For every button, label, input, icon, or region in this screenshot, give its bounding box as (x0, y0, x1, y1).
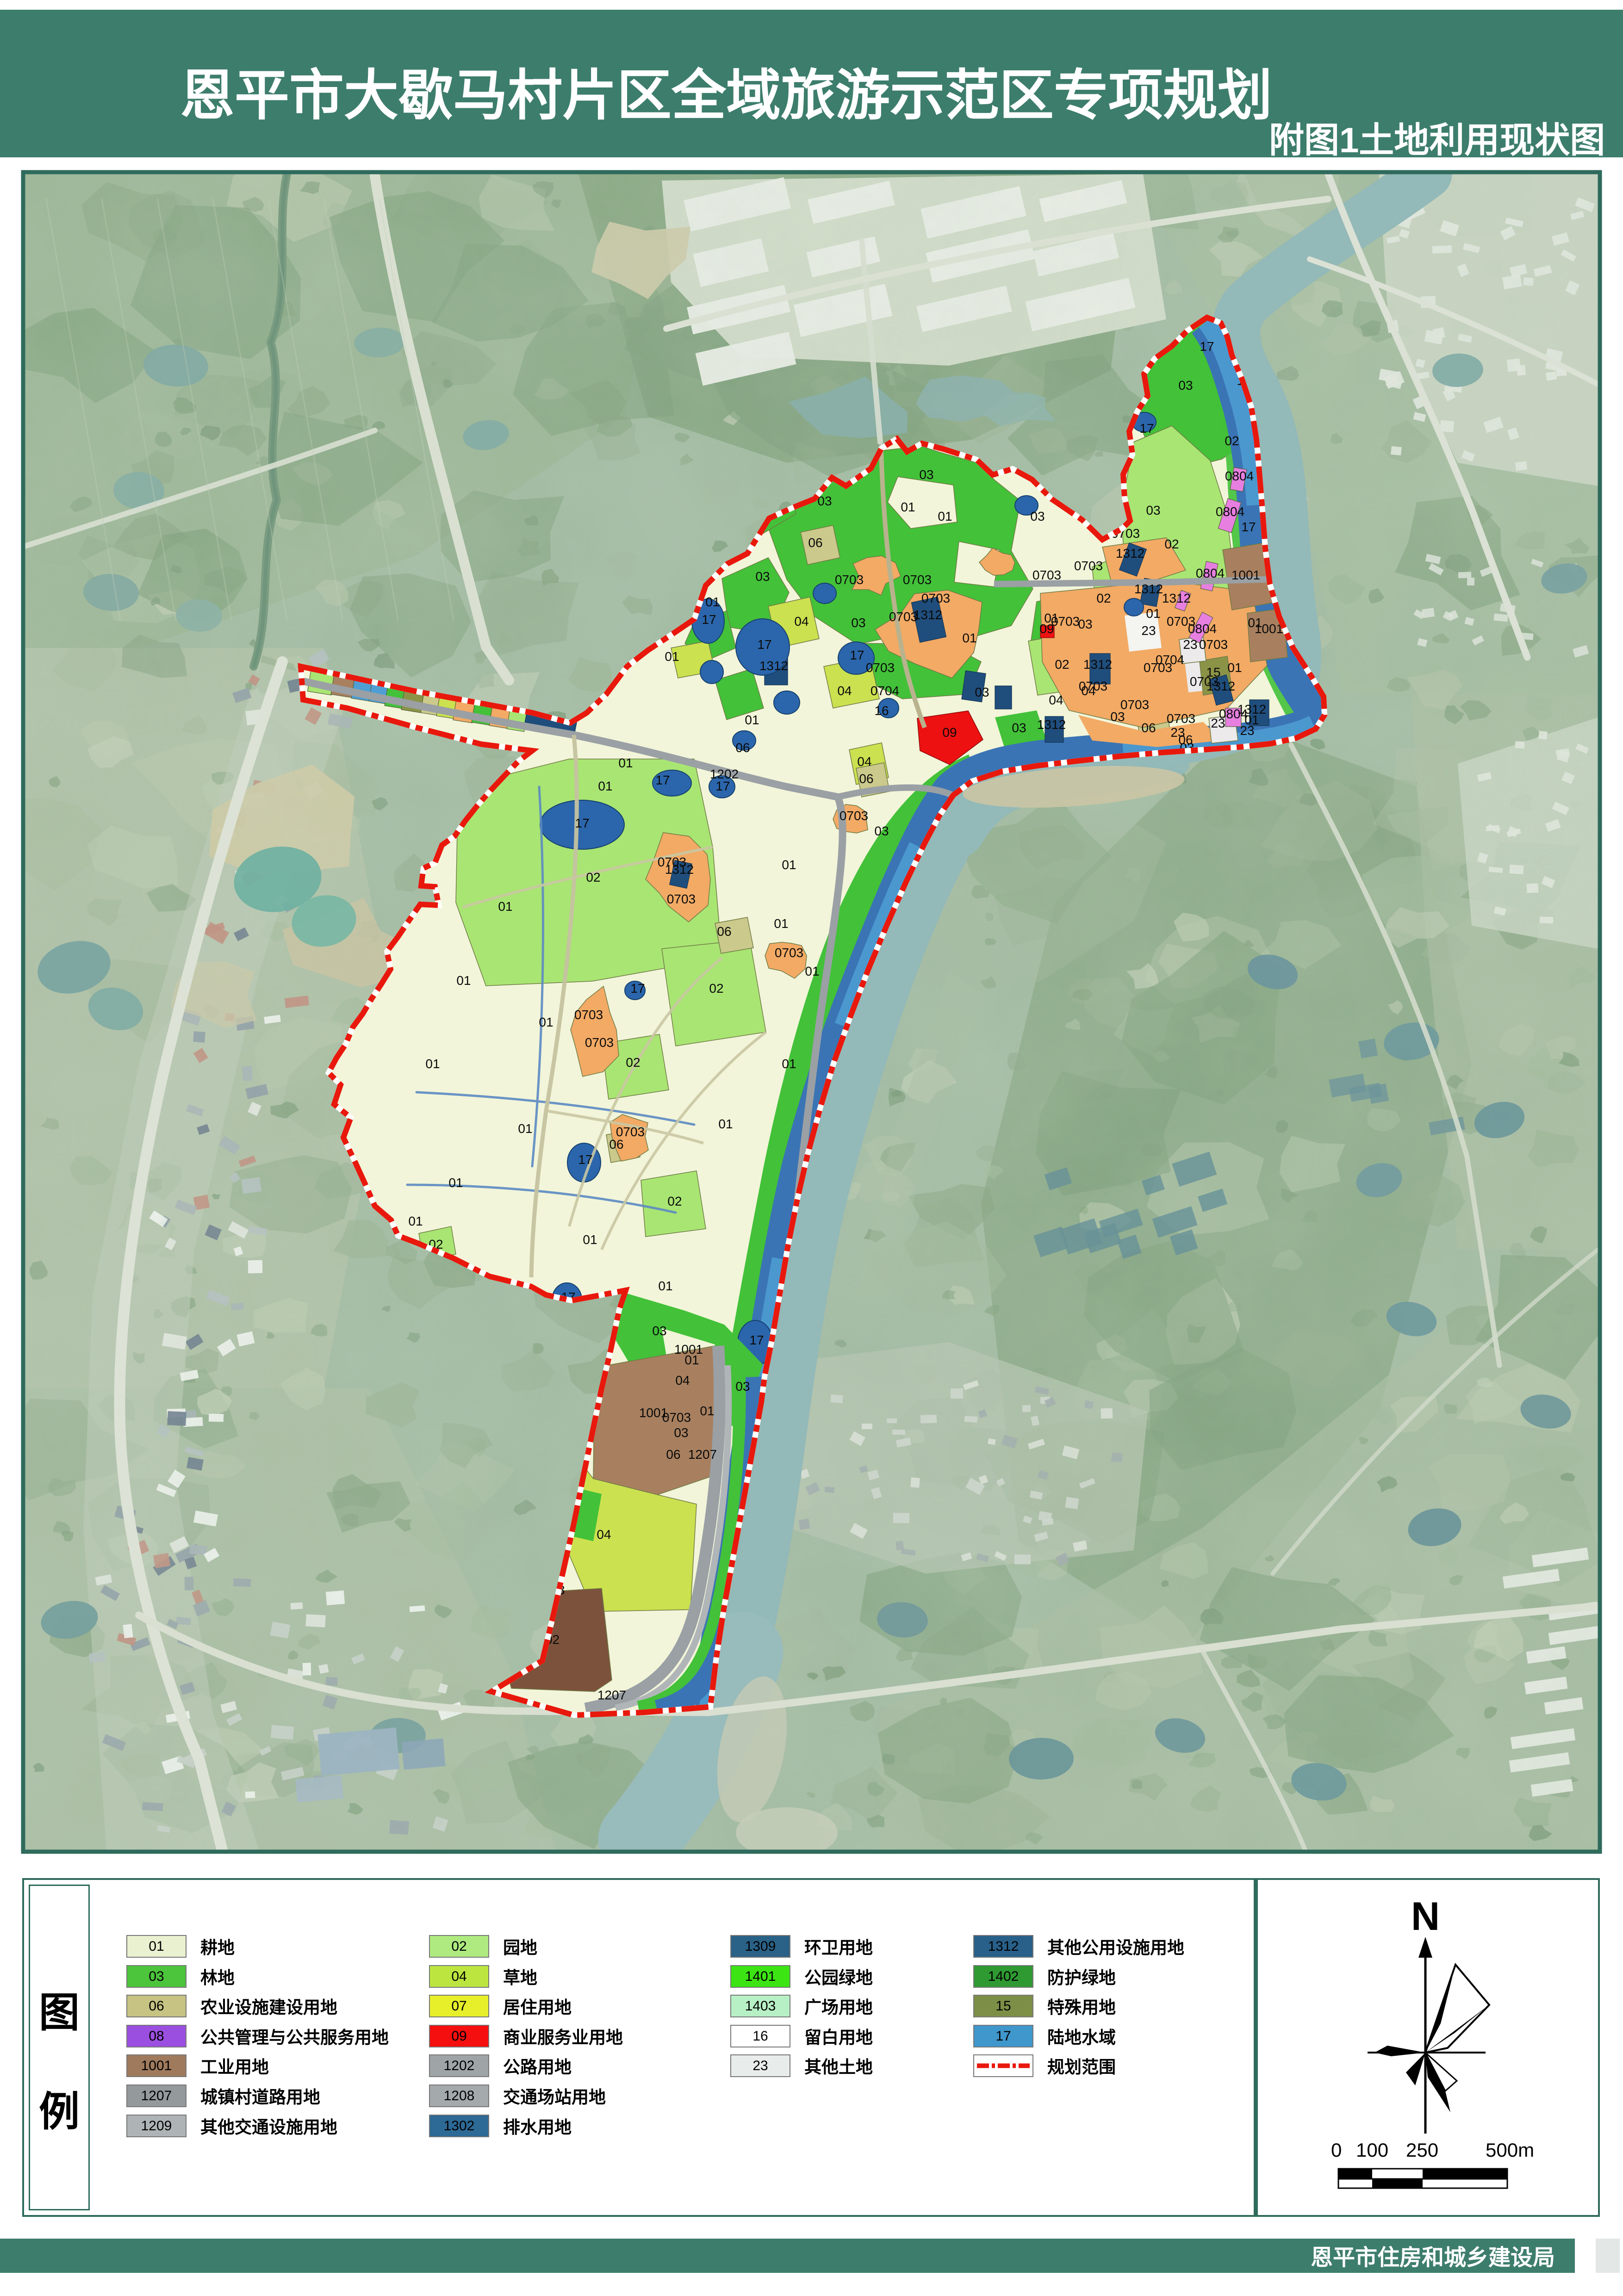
svg-text:0703: 0703 (1190, 674, 1219, 689)
svg-text:01: 01 (962, 631, 976, 645)
svg-text:1312: 1312 (1116, 546, 1144, 560)
svg-text:06: 06 (735, 740, 750, 755)
svg-text:0704: 0704 (871, 684, 899, 698)
svg-text:0703: 0703 (1074, 559, 1103, 573)
svg-text:01: 01 (718, 1117, 733, 1131)
svg-text:06: 06 (609, 1137, 623, 1151)
svg-text:06: 06 (808, 535, 822, 550)
svg-text:17: 17 (575, 816, 589, 830)
svg-text:04: 04 (1049, 693, 1063, 707)
svg-text:01: 01 (539, 1015, 553, 1029)
svg-text:0703: 0703 (775, 946, 803, 960)
svg-text:03: 03 (674, 1425, 688, 1440)
svg-text:0804: 0804 (1188, 622, 1217, 636)
svg-text:1312: 1312 (914, 608, 942, 622)
svg-text:0703: 0703 (903, 572, 932, 587)
svg-text:17: 17 (1139, 421, 1154, 436)
svg-text:04: 04 (837, 684, 852, 698)
svg-text:01: 01 (901, 500, 915, 514)
svg-text:03: 03 (874, 824, 889, 838)
svg-text:02: 02 (667, 1194, 682, 1208)
svg-text:01: 01 (774, 916, 788, 931)
svg-text:0703: 0703 (667, 892, 696, 906)
svg-text:03: 03 (919, 467, 933, 482)
svg-text:0804: 0804 (1225, 469, 1254, 483)
svg-text:01: 01 (425, 1057, 440, 1071)
svg-text:01: 01 (665, 649, 679, 664)
svg-text:04: 04 (794, 614, 808, 628)
svg-text:1312: 1312 (665, 862, 694, 877)
svg-text:0703: 0703 (866, 660, 895, 675)
svg-text:04: 04 (675, 1373, 690, 1388)
svg-text:03: 03 (1078, 617, 1092, 631)
svg-text:09: 09 (942, 725, 957, 740)
svg-text:02: 02 (626, 1055, 640, 1070)
svg-text:17: 17 (578, 1152, 592, 1167)
svg-text:06: 06 (1178, 733, 1193, 747)
svg-text:03: 03 (755, 569, 770, 584)
svg-text:0703: 0703 (921, 591, 950, 605)
svg-text:0703: 0703 (1051, 614, 1080, 628)
svg-text:01: 01 (456, 973, 471, 988)
svg-text:1001: 1001 (639, 1406, 668, 1420)
svg-text:17: 17 (655, 773, 670, 787)
svg-text:0703: 0703 (835, 572, 864, 587)
svg-text:23: 23 (1141, 623, 1156, 638)
svg-text:17: 17 (749, 1333, 764, 1347)
svg-text:03: 03 (1178, 378, 1193, 392)
svg-text:02: 02 (1096, 591, 1111, 605)
svg-text:0703: 0703 (839, 809, 868, 823)
svg-text:03: 03 (1110, 709, 1125, 724)
svg-text:01: 01 (938, 509, 952, 523)
svg-text:01: 01 (618, 756, 633, 770)
svg-text:16: 16 (874, 703, 889, 718)
svg-text:0703: 0703 (574, 1008, 603, 1022)
svg-text:06: 06 (666, 1447, 680, 1462)
svg-text:01: 01 (408, 1214, 423, 1228)
svg-text:1312: 1312 (759, 659, 788, 673)
svg-text:0703: 0703 (616, 1125, 645, 1139)
svg-text:02: 02 (709, 981, 723, 996)
svg-text:23: 23 (1183, 637, 1197, 652)
svg-text:1207: 1207 (597, 1688, 626, 1702)
svg-text:17: 17 (850, 648, 864, 662)
svg-text:03: 03 (975, 685, 989, 699)
svg-text:01: 01 (782, 858, 796, 872)
svg-text:01: 01 (705, 595, 720, 609)
svg-text:01: 01 (700, 1404, 714, 1418)
svg-text:17: 17 (702, 612, 716, 627)
svg-text:01: 01 (518, 1121, 532, 1136)
svg-text:06: 06 (859, 772, 873, 786)
svg-text:1202: 1202 (710, 767, 739, 781)
svg-text:01: 01 (498, 899, 512, 914)
svg-text:23: 23 (1211, 716, 1225, 730)
svg-text:01: 01 (658, 1279, 672, 1293)
svg-text:01: 01 (805, 964, 819, 978)
svg-text:1312: 1312 (1037, 717, 1066, 732)
svg-text:1207: 1207 (688, 1447, 717, 1462)
svg-text:01: 01 (598, 779, 612, 793)
svg-text:04: 04 (597, 1527, 611, 1542)
svg-text:01: 01 (583, 1232, 597, 1247)
svg-text:0703: 0703 (1032, 568, 1061, 582)
svg-text:1001: 1001 (1231, 568, 1260, 582)
svg-text:03: 03 (1012, 721, 1026, 735)
svg-text:23: 23 (1240, 723, 1254, 738)
svg-text:0703: 0703 (1199, 637, 1228, 652)
svg-text:01: 01 (1227, 660, 1242, 675)
svg-text:03: 03 (652, 1324, 666, 1338)
svg-text:03: 03 (735, 1379, 750, 1394)
svg-text:03: 03 (851, 616, 865, 630)
svg-text:03: 03 (1030, 509, 1045, 523)
svg-text:17: 17 (630, 981, 645, 996)
svg-text:01: 01 (448, 1176, 463, 1190)
svg-text:06: 06 (1141, 721, 1156, 735)
svg-text:06: 06 (717, 924, 731, 939)
svg-text:02: 02 (586, 870, 600, 884)
svg-text:1312: 1312 (1083, 657, 1112, 672)
svg-text:1312: 1312 (1134, 582, 1163, 596)
svg-text:0804: 0804 (1196, 566, 1225, 580)
svg-text:03: 03 (1146, 503, 1160, 517)
svg-text:02: 02 (1164, 537, 1179, 551)
svg-text:17: 17 (1200, 339, 1214, 354)
svg-text:02: 02 (1055, 657, 1069, 672)
svg-text:01: 01 (745, 713, 759, 727)
svg-text:1001: 1001 (1255, 622, 1283, 636)
svg-text:01: 01 (1146, 606, 1160, 621)
svg-text:17: 17 (1241, 520, 1256, 534)
svg-text:1001: 1001 (674, 1342, 703, 1356)
svg-text:02: 02 (1225, 434, 1239, 448)
svg-text:0703: 0703 (1144, 660, 1172, 675)
svg-text:0804: 0804 (1216, 504, 1244, 519)
svg-text:0703: 0703 (1079, 679, 1107, 693)
svg-text:01: 01 (782, 1057, 796, 1071)
svg-text:04: 04 (857, 754, 871, 769)
svg-text:17: 17 (757, 637, 771, 652)
svg-text:0703: 0703 (1167, 711, 1195, 726)
svg-text:0703: 0703 (585, 1035, 614, 1050)
svg-text:1312: 1312 (1162, 591, 1191, 605)
svg-text:N: N (1411, 1894, 1440, 1939)
